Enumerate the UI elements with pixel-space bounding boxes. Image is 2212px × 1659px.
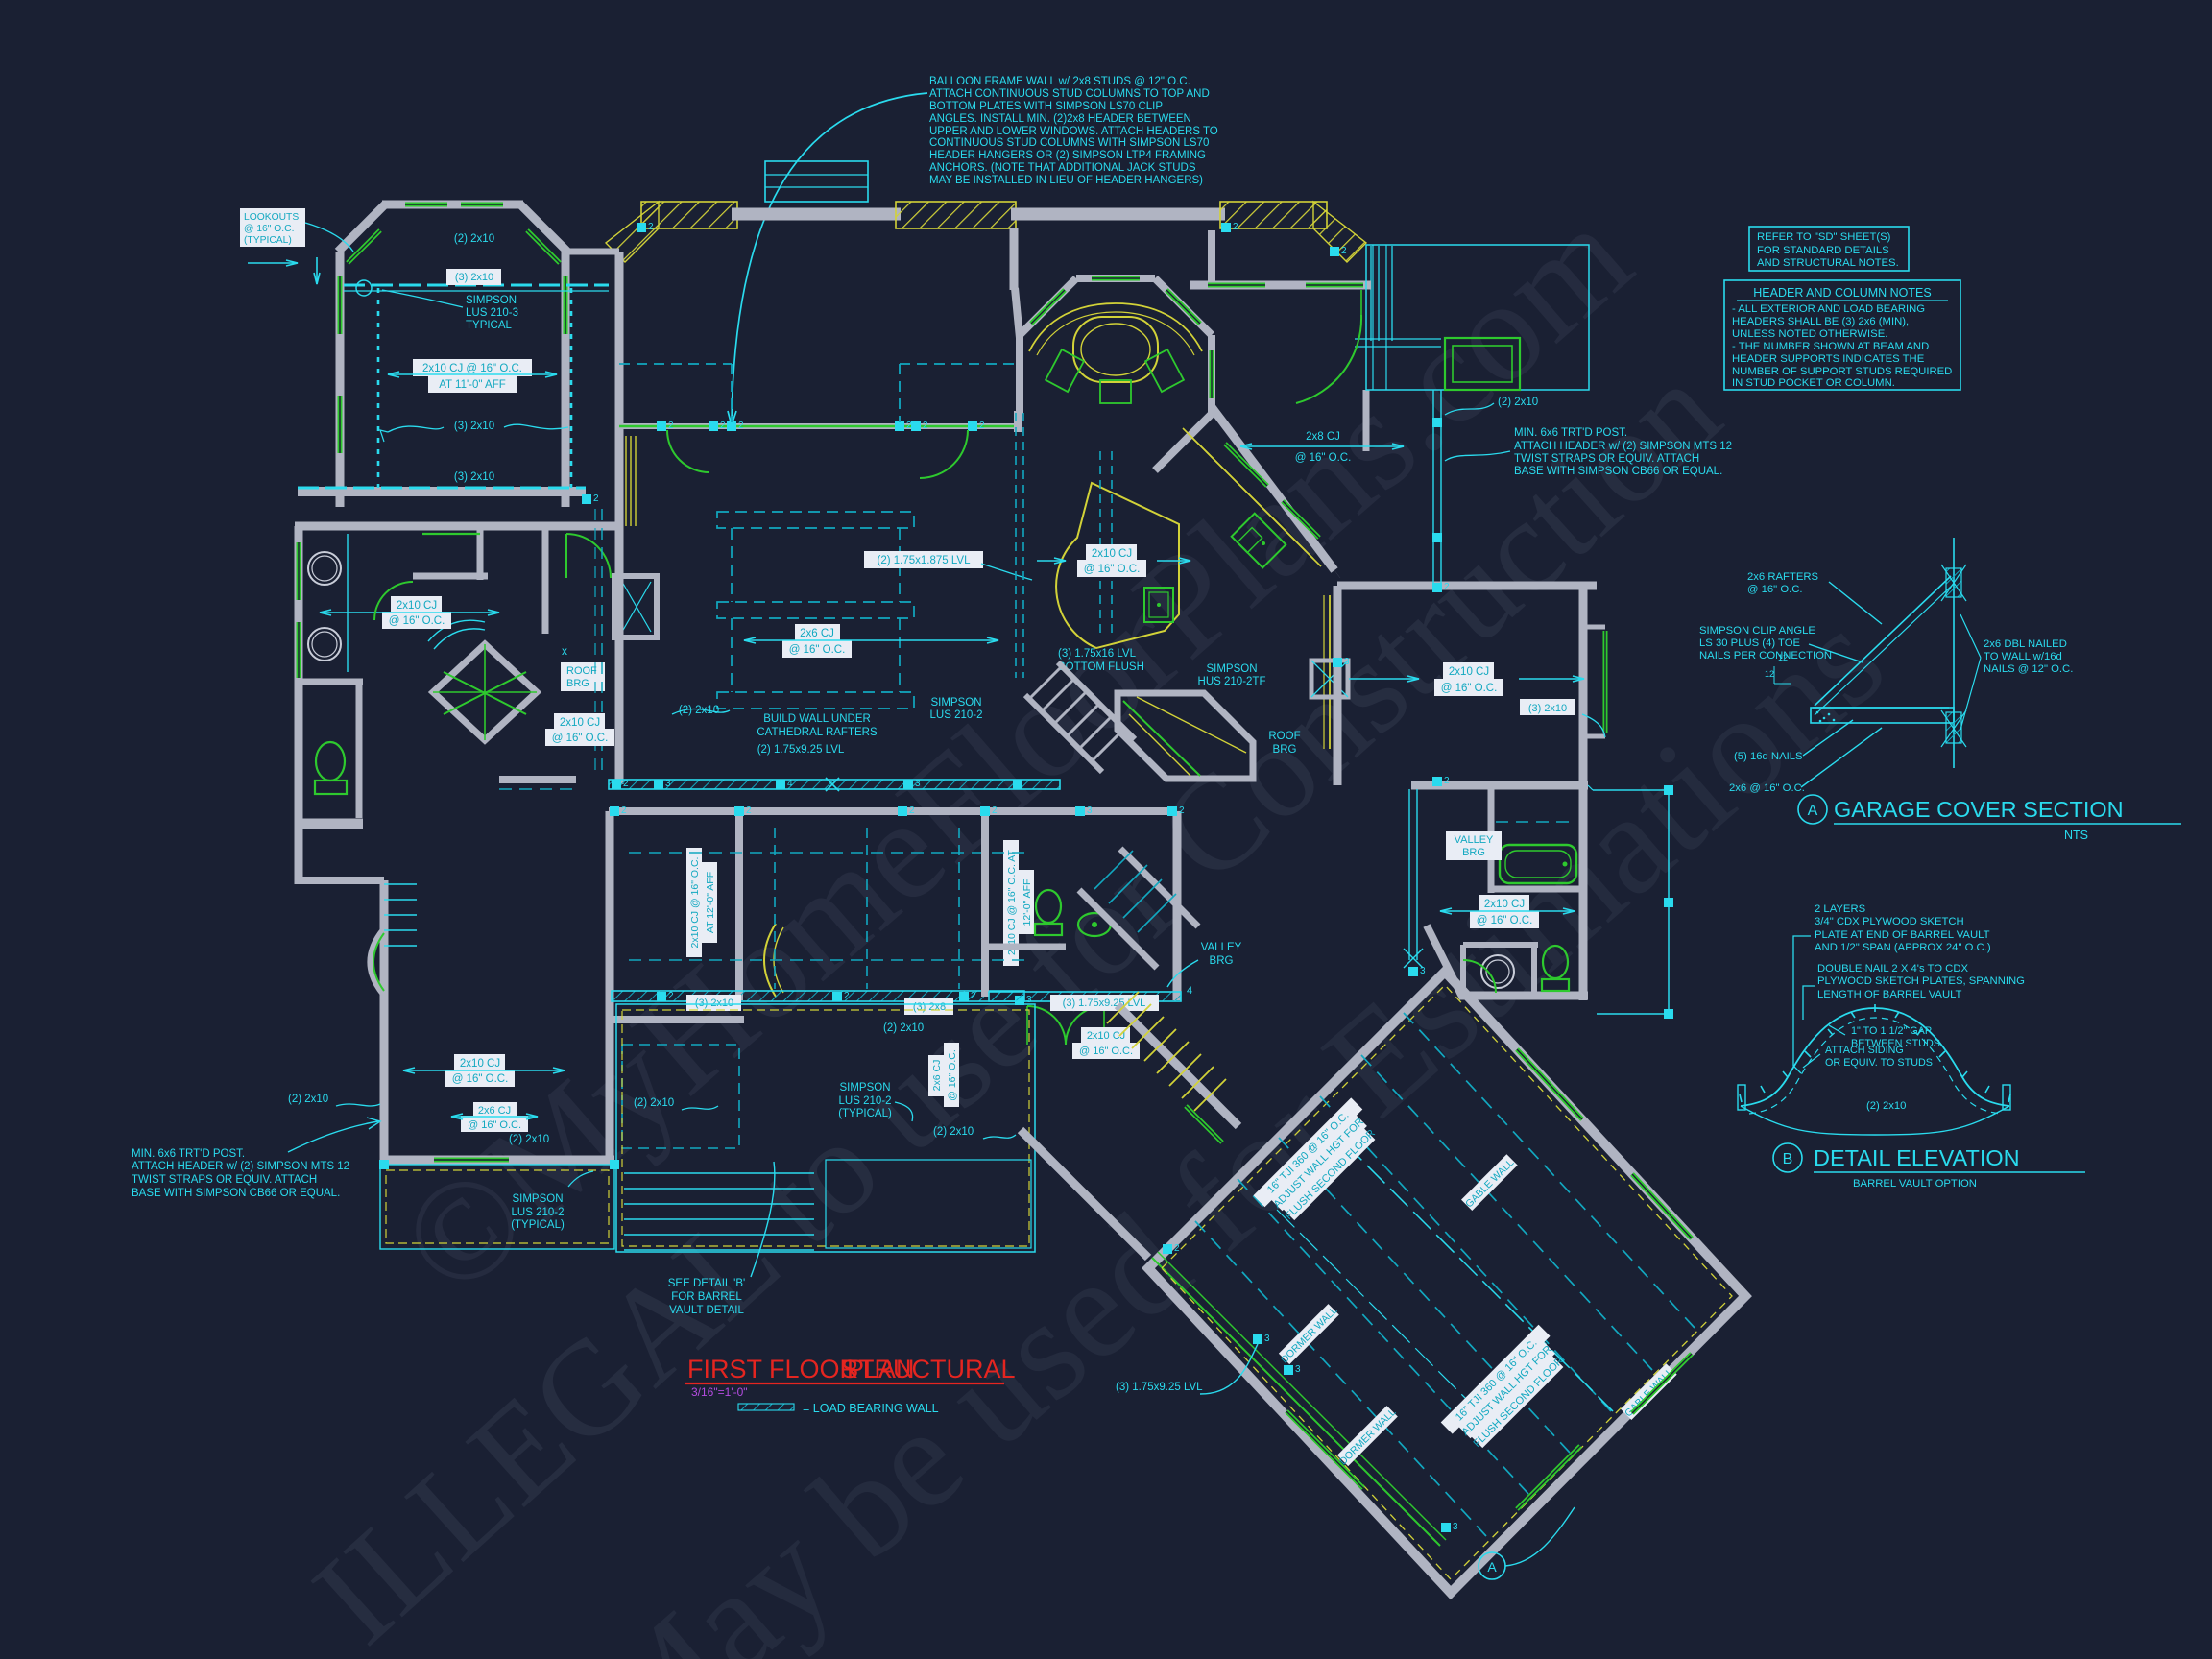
svg-text:2x10 CJ: 2x10 CJ [560,717,600,729]
svg-text:3: 3 [1264,1334,1270,1344]
svg-text:(3) 2x8: (3) 2x8 [913,1001,946,1013]
svg-text:ROOF: ROOF [1268,731,1300,742]
svg-text:SIMPSON: SIMPSON [466,295,517,306]
svg-text:2: 2 [909,805,915,816]
svg-text:12: 12 [1778,653,1788,662]
svg-text:(3) 2x10: (3) 2x10 [1528,703,1567,714]
svg-text:2x10 CJ: 2x10 CJ [1092,548,1132,560]
svg-text:2: 2 [648,222,654,232]
svg-text:12'-0" AFF: 12'-0" AFF [1022,879,1033,926]
svg-text:LOOKOUTS: LOOKOUTS [244,212,299,223]
svg-text:2x6 CJ: 2x6 CJ [478,1105,511,1117]
svg-text:2x6 CJ: 2x6 CJ [800,628,834,639]
svg-text:(3) 2x10: (3) 2x10 [455,272,493,283]
svg-text:(3) 1.75x16 LVL: (3) 1.75x16 LVL [1058,648,1137,660]
svg-text:(TYPICAL): (TYPICAL) [838,1108,892,1119]
svg-text:@ 16" O.C.: @ 16" O.C. [244,224,294,234]
svg-text:2: 2 [971,991,976,1001]
svg-text:LUS 210-2: LUS 210-2 [839,1095,892,1107]
svg-text:@ 16" O.C.: @ 16" O.C. [552,733,609,744]
svg-text:(2) 2x10: (2) 2x10 [883,1022,924,1034]
svg-text:TWIST STRAPS OR EQUIV. ATTACH: TWIST STRAPS OR EQUIV. ATTACH [1514,453,1699,465]
svg-text:@ 16" O.C.: @ 16" O.C. [1477,915,1533,926]
svg-text:BRG: BRG [1273,744,1297,756]
svg-text:REFER TO "SD" SHEET(S): REFER TO "SD" SHEET(S) [1757,231,1891,243]
svg-text:NTS: NTS [2064,829,2088,842]
svg-text:SIMPSON: SIMPSON [1206,663,1257,675]
svg-text:AT 11'-0" AFF: AT 11'-0" AFF [439,379,506,391]
svg-text:SIMPSON: SIMPSON [839,1082,890,1094]
svg-text:2: 2 [623,779,629,789]
svg-text:MIN. 6x6 TRT'D POST.: MIN. 6x6 TRT'D POST. [1514,427,1627,439]
svg-text:ANCHORS. (NOTE THAT ADDITIONAL: ANCHORS. (NOTE THAT ADDITIONAL JACK STUD… [929,162,1196,174]
svg-text:2: 2 [621,805,627,816]
svg-text:3/16"=1'-0": 3/16"=1'-0" [691,1385,748,1399]
svg-text:4: 4 [1187,985,1192,997]
svg-text:2x6 @ 16" O.C.: 2x6 @ 16" O.C. [1729,782,1805,794]
svg-text:@ 16" O.C.: @ 16" O.C. [1295,452,1352,464]
svg-text:@ 16" O.C.: @ 16" O.C. [452,1073,509,1085]
svg-text:HUS 210-2TF: HUS 210-2TF [1198,676,1266,687]
svg-text:HEADER AND COLUMN NOTES: HEADER AND COLUMN NOTES [1753,286,1931,300]
svg-text:AT 12'-0" AFF: AT 12'-0" AFF [705,872,716,933]
svg-text:BALLOON FRAME WALL w/ 2x8 STUD: BALLOON FRAME WALL w/ 2x8 STUDS @ 12" O.… [929,76,1190,87]
svg-text:- THE NUMBER SHOWN AT BEAM AND: - THE NUMBER SHOWN AT BEAM AND [1732,341,1929,352]
svg-text:LS 30 PLUS (4) TOE: LS 30 PLUS (4) TOE [1699,637,1801,649]
svg-text:3: 3 [1420,966,1426,976]
svg-text:(TYPICAL): (TYPICAL) [244,235,292,246]
svg-text:3: 3 [1295,1364,1301,1375]
svg-text:@ 16" O.C.: @ 16" O.C. [947,1049,958,1100]
svg-text:STRUCTURAL: STRUCTURAL [841,1355,1016,1383]
svg-text:ANGLES. INSTALL MIN. (2)2x8 HE: ANGLES. INSTALL MIN. (2)2x8 HEADER BETWE… [929,113,1191,125]
svg-text:2: 2 [668,991,674,1001]
svg-text:BRG: BRG [1210,955,1234,967]
svg-text:LUS 210-2: LUS 210-2 [930,709,983,721]
svg-text:TYPICAL: TYPICAL [466,320,513,331]
svg-text:MIN. 6x6 TRT'D POST.: MIN. 6x6 TRT'D POST. [132,1148,245,1160]
svg-text:ATTACH CONTINUOUS STUD COLUMNS: ATTACH CONTINUOUS STUD COLUMNS TO TOP AN… [929,88,1210,100]
svg-text:A: A [1487,1559,1497,1575]
svg-text:= LOAD BEARING WALL: = LOAD BEARING WALL [803,1402,939,1415]
svg-text:2x10 CJ @ 16" O.C.: 2x10 CJ @ 16" O.C. [422,363,522,374]
svg-text:2x10 CJ: 2x10 CJ [460,1058,500,1070]
svg-text:(3) 1.75x9.25 LVL: (3) 1.75x9.25 LVL [1063,998,1146,1009]
svg-text:FIRST FLOOR: FIRST FLOOR [687,1355,858,1383]
svg-text:3: 3 [1087,805,1093,816]
svg-text:SIMPSON: SIMPSON [930,697,981,709]
svg-text:VALLEY: VALLEY [1201,942,1242,953]
svg-text:A: A [1808,803,1818,819]
svg-text:AND 1/2" SPAN (APPROX 24" O.C.: AND 1/2" SPAN (APPROX 24" O.C.) [1815,942,1991,953]
svg-text:CATHEDRAL RAFTERS: CATHEDRAL RAFTERS [757,727,878,738]
svg-text:3: 3 [665,779,671,789]
svg-text:(3) 2x10: (3) 2x10 [454,421,494,432]
svg-text:GARAGE COVER SECTION: GARAGE COVER SECTION [1834,797,2124,822]
svg-text:ROOF: ROOF [566,665,597,677]
svg-text:B: B [1783,1151,1793,1167]
svg-text:LUS 210-2: LUS 210-2 [512,1207,565,1218]
svg-text:2 LAYERS: 2 LAYERS [1815,903,1866,915]
svg-text:HEADER SUPPORTS INDICATES THE: HEADER SUPPORTS INDICATES THE [1732,353,1925,365]
svg-text:ATTACH HEADER w/ (2) SIMPSON M: ATTACH HEADER w/ (2) SIMPSON MTS 12 [132,1161,349,1172]
svg-text:@ 16" O.C.: @ 16" O.C. [1079,1046,1133,1057]
svg-text:FOR STANDARD DETAILS: FOR STANDARD DETAILS [1757,245,1889,256]
svg-text:SIMPSON CLIP ANGLE: SIMPSON CLIP ANGLE [1699,625,1815,637]
svg-text:3: 3 [1453,1522,1458,1532]
svg-text:@ 16" O.C.: @ 16" O.C. [1084,564,1141,575]
svg-text:(3) 2x10: (3) 2x10 [695,998,733,1009]
svg-text:3: 3 [1344,657,1350,667]
svg-text:2: 2 [738,421,744,431]
svg-text:2: 2 [1444,776,1450,786]
svg-text:3: 3 [915,779,921,789]
svg-text:ATTACH SIDING: ATTACH SIDING [1825,1045,1904,1056]
svg-text:(2) 2x10: (2) 2x10 [454,233,494,245]
svg-text:(2) 2x10: (2) 2x10 [679,705,719,716]
svg-text:BRG: BRG [1462,847,1485,858]
svg-text:NAILS @ 12" O.C.: NAILS @ 12" O.C. [1984,663,2073,675]
svg-text:2: 2 [923,421,928,431]
svg-text:DOUBLE NAIL 2 X 4's TO CDX: DOUBLE NAIL 2 X 4's TO CDX [1817,963,1968,974]
svg-text:2: 2 [979,421,985,431]
svg-text:2x10 CJ @ 16" O.C.: 2x10 CJ @ 16" O.C. [689,857,701,949]
svg-text:BUILD WALL UNDER: BUILD WALL UNDER [763,713,871,725]
svg-text:- ALL EXTERIOR AND LOAD BEARIN: - ALL EXTERIOR AND LOAD BEARING [1732,303,1925,315]
svg-text:LENGTH OF BARREL VAULT: LENGTH OF BARREL VAULT [1817,989,1962,1000]
svg-text:ATTACH HEADER w/ (2) SIMPSON M: ATTACH HEADER w/ (2) SIMPSON MTS 12 [1514,441,1732,452]
svg-text:2: 2 [1444,582,1450,592]
svg-text:(2) 1.75x9.25 LVL: (2) 1.75x9.25 LVL [757,744,845,756]
svg-text:2x10 CJ @ 16" O.C. AT: 2x10 CJ @ 16" O.C. AT [1006,849,1018,954]
svg-text:SEE DETAIL 'B': SEE DETAIL 'B' [668,1278,745,1289]
svg-text:HEADERS SHALL BE (3) 2x6 (MIN): HEADERS SHALL BE (3) 2x6 (MIN), [1732,316,1909,327]
svg-text:2: 2 [992,805,998,816]
svg-text:(2) 2x10: (2) 2x10 [1498,397,1538,408]
svg-text:TO WALL w/16d: TO WALL w/16d [1984,651,2062,662]
svg-text:(TYPICAL): (TYPICAL) [511,1219,565,1231]
svg-text:2x10 CJ: 2x10 CJ [1484,899,1525,910]
svg-text:2x6 RAFTERS: 2x6 RAFTERS [1747,571,1819,583]
svg-text:OR EQUIV. TO STUDS: OR EQUIV. TO STUDS [1825,1057,1933,1069]
svg-text:2: 2 [593,493,599,504]
svg-text:2: 2 [668,421,674,431]
svg-text:IN STUD POCKET OR COLUMN.: IN STUD POCKET OR COLUMN. [1732,377,1895,389]
svg-text:BRG: BRG [566,678,589,689]
svg-text:BASE WITH SIMPSON CB66 OR EQUA: BASE WITH SIMPSON CB66 OR EQUAL. [1514,466,1722,477]
svg-text:NUMBER OF SUPPORT STUDS REQUIR: NUMBER OF SUPPORT STUDS REQUIRED [1732,366,1952,377]
svg-text:(2) 1.75x1.875 LVL: (2) 1.75x1.875 LVL [878,555,972,566]
svg-text:2: 2 [1174,1243,1180,1254]
svg-text:(3) 1.75x9.25 LVL: (3) 1.75x9.25 LVL [1116,1382,1203,1393]
svg-text:VALLEY: VALLEY [1455,834,1494,846]
svg-text:2x8 CJ: 2x8 CJ [1306,431,1340,443]
svg-text:HEADER HANGERS OR (2) SIMPSON: HEADER HANGERS OR (2) SIMPSON LTP4 FRAMI… [929,150,1206,161]
svg-text:(3) 2x10: (3) 2x10 [454,471,494,483]
svg-text:@ 16" O.C.: @ 16" O.C. [789,644,846,656]
svg-text:BASE WITH SIMPSON CB66 OR EQUA: BASE WITH SIMPSON CB66 OR EQUAL. [132,1188,340,1199]
svg-text:2x10 CJ: 2x10 CJ [1449,666,1489,678]
svg-text:2x10 CJ: 2x10 CJ [397,600,437,612]
svg-text:UNLESS NOTED OTHERWISE.: UNLESS NOTED OTHERWISE. [1732,328,1887,340]
svg-text:FOR BARREL: FOR BARREL [671,1291,742,1303]
svg-text:(2) 2x10: (2) 2x10 [509,1134,549,1145]
svg-text:2: 2 [746,805,752,816]
svg-text:PLYWOOD SKETCH PLATES, SPANNIN: PLYWOOD SKETCH PLATES, SPANNING [1817,975,2025,987]
svg-text:2: 2 [1233,222,1238,232]
svg-text:2: 2 [1341,246,1347,256]
svg-text:12: 12 [1765,669,1774,679]
svg-text:@ 16" O.C.: @ 16" O.C. [1747,584,1803,595]
svg-text:(2) 2x10: (2) 2x10 [1866,1100,1906,1112]
svg-text:BARREL VAULT OPTION: BARREL VAULT OPTION [1853,1178,1977,1190]
svg-text:2x6 DBL NAILED: 2x6 DBL NAILED [1984,638,2067,650]
svg-text:VAULT DETAIL: VAULT DETAIL [669,1305,744,1316]
svg-text:@ 16" O.C.: @ 16" O.C. [1441,683,1498,694]
svg-text:2: 2 [844,991,850,1001]
svg-text:4: 4 [787,779,793,789]
svg-text:(5) 16d NAILS: (5) 16d NAILS [1734,751,1803,762]
svg-text:CONTINUOUS STUD COLUMNS WITH S: CONTINUOUS STUD COLUMNS WITH SIMPSON LS7… [929,137,1209,149]
svg-text:2: 2 [1179,805,1185,816]
svg-text:@ 16" O.C.: @ 16" O.C. [389,615,445,627]
svg-text:x: x [562,644,567,658]
svg-text:BOTTOM FLUSH: BOTTOM FLUSH [1058,661,1144,673]
svg-text:SIMPSON: SIMPSON [512,1193,563,1205]
svg-text:UPPER AND LOWER WINDOWS. ATTAC: UPPER AND LOWER WINDOWS. ATTACH HEADERS … [929,126,1218,137]
svg-text:@ 16" O.C.: @ 16" O.C. [468,1119,521,1131]
svg-text:PLATE AT END OF BARREL VAULT: PLATE AT END OF BARREL VAULT [1815,929,1990,941]
svg-text:2x6 CJ: 2x6 CJ [931,1060,943,1092]
svg-text:AND STRUCTURAL NOTES.: AND STRUCTURAL NOTES. [1757,257,1899,269]
svg-text:NAILS PER CONNECTION: NAILS PER CONNECTION [1699,650,1832,661]
svg-text:(2) 2x10: (2) 2x10 [288,1094,328,1105]
svg-text:1" TO 1 1/2" GAP: 1" TO 1 1/2" GAP [1851,1025,1932,1037]
svg-text:TWIST STRAPS OR EQUIV. ATTACH: TWIST STRAPS OR EQUIV. ATTACH [132,1174,317,1186]
svg-text:MAY BE INSTALLED IN LIEU OF HE: MAY BE INSTALLED IN LIEU OF HEADER HANGE… [929,175,1203,186]
svg-text:(2) 2x10: (2) 2x10 [933,1126,974,1138]
svg-text:BOTTOM PLATES WITH SIMPSON LS7: BOTTOM PLATES WITH SIMPSON LS70 CLIP [929,101,1163,112]
svg-text:DETAIL ELEVATION: DETAIL ELEVATION [1814,1145,2020,1170]
svg-text:(2) 2x10: (2) 2x10 [634,1097,674,1109]
svg-text:3/4" CDX PLYWOOD SKETCH: 3/4" CDX PLYWOOD SKETCH [1815,916,1964,927]
svg-text:LUS 210-3: LUS 210-3 [466,307,518,319]
svg-text:2: 2 [720,421,726,431]
